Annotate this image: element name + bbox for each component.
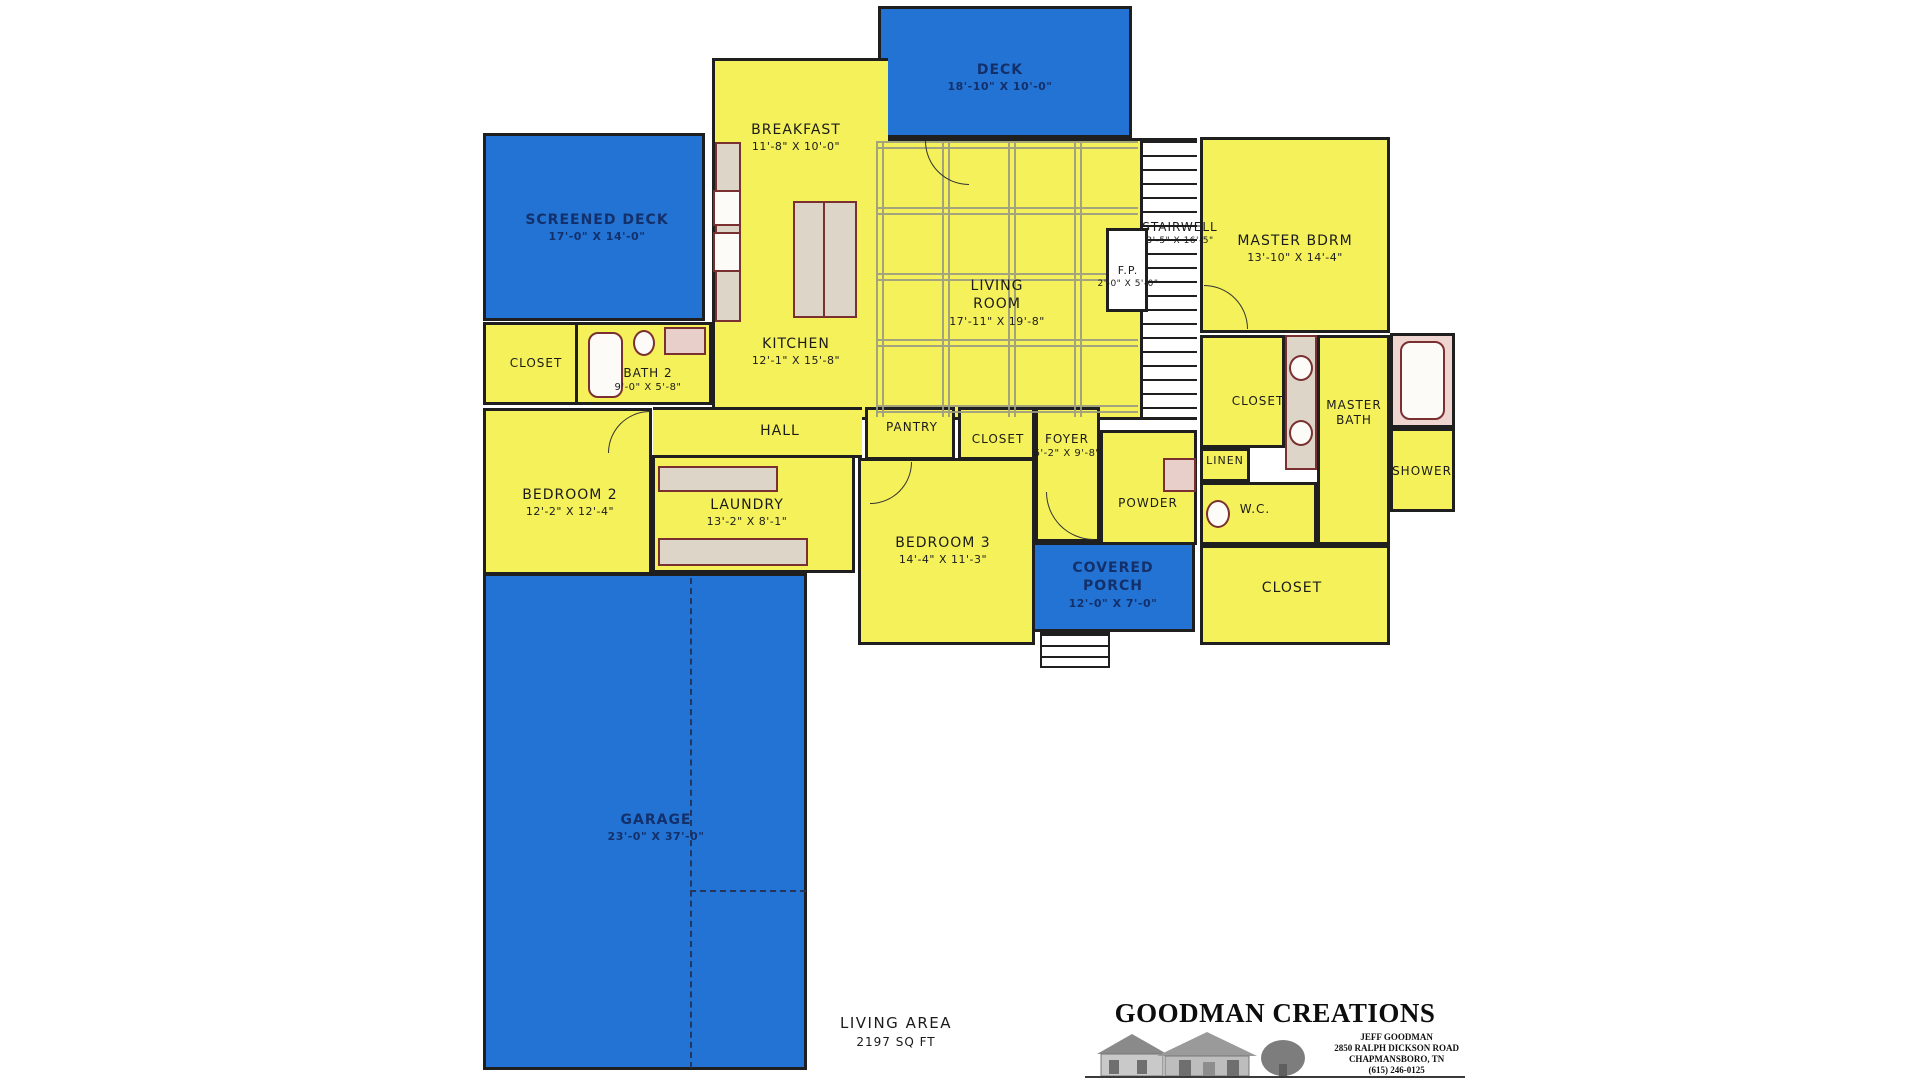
kitchen-sink-icon [713,190,741,226]
room-master-hall-closet [1200,335,1285,448]
room-linen [1200,448,1250,482]
toilet-icon [1206,500,1230,528]
living-area-value: 2197 SQ FT [840,1035,952,1049]
room-deck [878,6,1132,138]
room-screened-deck [483,133,705,321]
bathtub-icon [588,332,623,398]
garage-dashed-partition [690,890,806,892]
sink-vanity-icon [664,327,706,355]
room-master-closet [1200,545,1390,645]
kitchen-island-icon [793,201,857,318]
range-icon [713,232,741,272]
toilet-icon [633,330,655,356]
room-shower [1390,428,1455,512]
floor-plan: DECK 18'-10" X 10'-0" SCREENED DECK 17'-… [0,0,1920,1080]
washer-dryer-counter-icon [658,466,778,492]
island-divider [823,203,825,316]
logo-address-line: 2850 RALPH DICKSON ROAD [1334,1043,1459,1054]
sink-icon [1289,355,1313,381]
powder-sink-icon [1163,458,1196,492]
logo-address: JEFF GOODMAN 2850 RALPH DICKSON ROAD CHA… [1334,1032,1459,1076]
stairwell-treads-icon [1140,141,1197,417]
room-covered-porch [1032,542,1195,632]
logo-address-line: (615) 246-0125 [1334,1065,1459,1076]
logo-block: GOODMAN CREATIONS JEFF GOODMAN 2850 RALP… [1085,998,1465,1078]
garage-dashed-partition [690,578,692,1068]
logo-address-line: CHAPMANSBORO, TN [1334,1054,1459,1065]
room-hall [653,407,862,458]
wall-divider [575,322,578,405]
living-area-note: LIVING AREA 2197 SQ FT [840,1014,952,1049]
logo-underline [1085,1076,1465,1078]
ceiling-grid [876,141,1138,417]
room-garage [483,573,807,1070]
sink-icon [1289,420,1313,446]
logo-house-icon [1087,1024,1317,1076]
fireplace-icon [1106,228,1148,312]
logo-address-line: JEFF GOODMAN [1334,1032,1459,1043]
laundry-counter-icon [658,538,808,566]
porch-steps-icon [1040,632,1110,668]
bathtub-icon [1400,341,1445,420]
living-area-label: LIVING AREA [840,1014,952,1032]
room-master-bath [1317,335,1390,545]
